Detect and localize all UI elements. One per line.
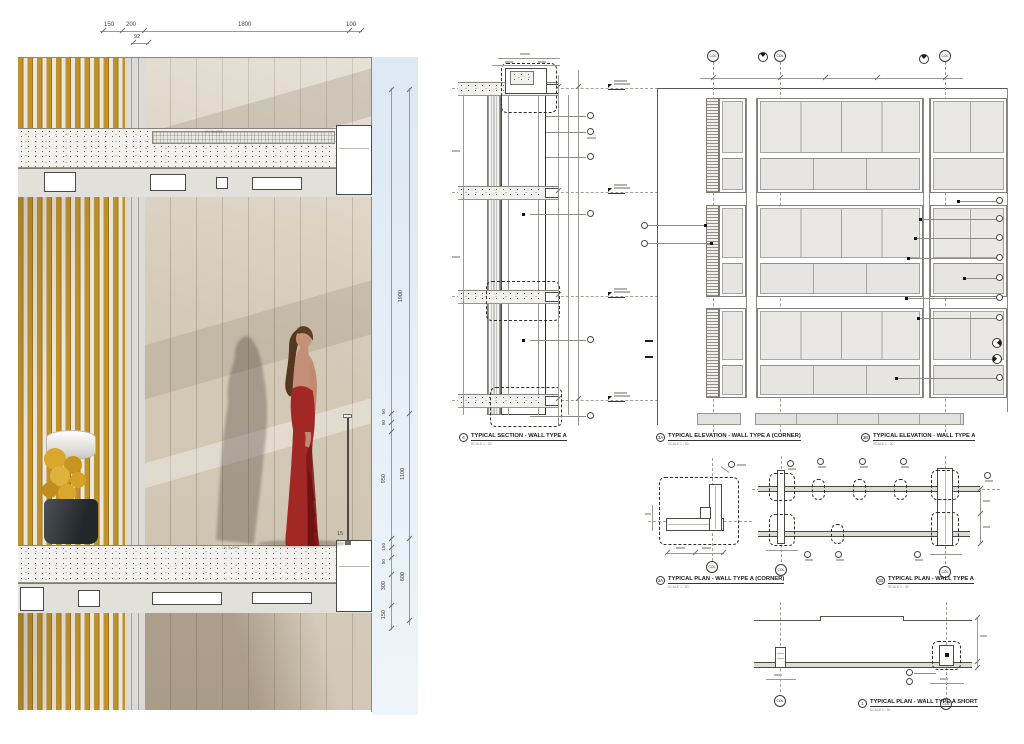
dim-right-1900: 1900 xyxy=(398,290,404,302)
callout-circle xyxy=(587,112,594,119)
lamp-base xyxy=(44,499,98,544)
callout-circle xyxy=(914,551,921,558)
tick xyxy=(823,75,829,81)
dot xyxy=(957,200,960,203)
corner-bracket-upper xyxy=(336,125,372,195)
tick xyxy=(146,40,152,46)
section-dim-v1 xyxy=(558,75,559,425)
dim-right-1100: 1100 xyxy=(400,468,406,480)
dot xyxy=(919,218,922,221)
callout-circle xyxy=(728,461,735,468)
elev-louver-strip-b1 xyxy=(706,98,719,193)
leader xyxy=(960,201,996,202)
callout-subtext xyxy=(901,466,909,468)
plan1-step-line-b xyxy=(820,616,903,617)
section-dim-v2 xyxy=(568,95,569,415)
elev-bottom-strip-2 xyxy=(755,413,964,425)
elev-right-boundary xyxy=(1007,88,1008,412)
drawing-title-plan2b: 2B TYPICAL PLAN - WALL TYPE ASCALE 1 : 3… xyxy=(876,576,974,589)
corner-bracket-lower xyxy=(336,540,372,612)
micro-dim-text xyxy=(505,61,513,63)
level-marker xyxy=(608,188,630,196)
drawing-title-plan1: 1 TYPICAL PLAN - WALL TYPE A SHORTSCALE … xyxy=(858,699,978,712)
title-bubble-2a: 2A xyxy=(656,576,665,585)
gridline-2 xyxy=(780,62,781,432)
plan2a-dim-left xyxy=(652,505,653,531)
plan2a-corner-fitting xyxy=(700,507,711,519)
tick xyxy=(721,550,727,556)
plan2b-dim-leftmullion xyxy=(766,550,798,551)
soffit-lower-box-4 xyxy=(252,592,312,604)
callout-circle xyxy=(996,274,1003,281)
micro-dim-text xyxy=(452,256,460,258)
callout-circle xyxy=(996,254,1003,261)
gridline-1 xyxy=(713,62,714,432)
plan1-left-mullion-line2 xyxy=(777,658,784,659)
callout-circle xyxy=(996,234,1003,241)
grid-bubble-plan1-left: COL xyxy=(774,695,786,707)
render-section: 1% SLOPE 1% SLOPE xyxy=(0,0,455,744)
dim-right-950: 950 xyxy=(381,474,387,483)
title-bubble-2b: 2B xyxy=(876,576,885,585)
micro-dim-text xyxy=(452,150,460,152)
elev-left-boundary xyxy=(657,88,658,425)
soffit-upper-box-4 xyxy=(252,177,302,190)
section6-drawing xyxy=(450,40,650,460)
micro-dim-text xyxy=(983,500,990,502)
level-marker xyxy=(608,84,630,92)
plan2b-left-detail-top xyxy=(769,473,795,501)
soffit-upper-box-2 xyxy=(150,174,186,191)
leader xyxy=(914,673,936,674)
plan1-step-line-a xyxy=(754,620,820,621)
callout-circle xyxy=(906,678,913,685)
callout-subtext xyxy=(805,559,813,561)
dim-right-50a: 50 xyxy=(381,409,386,414)
plan1-left-mullion-line xyxy=(777,653,784,654)
tick xyxy=(359,28,365,34)
elev-bayA-b1 xyxy=(719,98,746,193)
leader xyxy=(908,298,996,299)
bay-gap-line-4 xyxy=(929,98,930,398)
callout-circle xyxy=(787,460,794,467)
dim-right-50c: 50 xyxy=(381,559,386,564)
grid-bubble-2: COL xyxy=(774,50,786,62)
plan2b-joint-lower xyxy=(831,524,844,544)
plan2b-joint-2 xyxy=(853,479,866,500)
title-bubble-6: 6 xyxy=(459,433,468,442)
grid-bubble-3: COL xyxy=(939,50,951,62)
lamp-ball-5 xyxy=(42,482,58,498)
dim-rail-15: 15 xyxy=(337,531,343,537)
plan1-step-line-c xyxy=(903,620,972,621)
plan2b-joint-1 xyxy=(812,479,825,500)
leader xyxy=(920,318,996,319)
callout-circle xyxy=(587,128,594,135)
dim-right-50b: 50 xyxy=(381,420,386,425)
plan1-dim-right xyxy=(930,683,964,684)
callout-subtext xyxy=(985,480,993,482)
dot xyxy=(963,277,966,280)
drawing-title-section6: 6 TYPICAL SECTION - WALL TYPE ASCALE 1 :… xyxy=(459,433,567,446)
elev-bayMain-b2 xyxy=(757,205,923,297)
dot xyxy=(917,317,920,320)
elev-bayRight-b1 xyxy=(930,98,1007,193)
tick xyxy=(943,75,949,81)
callout-subtext xyxy=(737,464,746,466)
callout-subtext xyxy=(587,137,596,139)
leader xyxy=(648,225,704,226)
slab-lower-concrete xyxy=(18,545,372,583)
soffit-lower-box-3 xyxy=(152,592,222,605)
tick xyxy=(711,75,717,81)
dim-line-right-inner xyxy=(391,88,392,630)
callout-subtext xyxy=(915,559,923,561)
dot xyxy=(907,257,910,260)
dot xyxy=(914,237,917,240)
compass-marker-up xyxy=(992,338,1002,348)
leader xyxy=(922,219,996,220)
plan2b-left-detail-bottom xyxy=(769,514,795,546)
callout-circle xyxy=(587,412,594,419)
callout-circle xyxy=(817,458,824,465)
plan2b-dim-right xyxy=(980,489,981,544)
micro-dim-text xyxy=(774,674,782,676)
callout-circle xyxy=(587,153,594,160)
section-dim-left xyxy=(463,95,464,415)
section-detail-box-top xyxy=(501,63,557,113)
grid-bubble-2b-left: COL xyxy=(775,564,787,576)
section-dim-top-2 xyxy=(492,65,560,66)
section-wall-line-a xyxy=(508,95,509,415)
plan2b-drawing: COL COL xyxy=(750,452,1010,577)
drawing-title-elev3a: 3A TYPICAL ELEVATION - WALL TYPE A (CORN… xyxy=(656,433,801,446)
dot xyxy=(522,339,525,342)
drawing-title-plan2a: 2A TYPICAL PLAN - WALL TYPE A (CORNER)SC… xyxy=(656,576,784,589)
bay-gap-line-1 xyxy=(746,98,747,398)
callout-circle xyxy=(996,215,1003,222)
callout-circle xyxy=(835,551,842,558)
title-bubble-3a: 3A xyxy=(656,433,665,442)
plan2b-right-detail-top xyxy=(931,470,959,500)
callout-circle xyxy=(996,294,1003,301)
soffit-lower-box-2 xyxy=(78,590,100,607)
section-slab-2 xyxy=(458,186,558,200)
level-marker xyxy=(608,396,630,404)
elev-bayA-b2 xyxy=(719,205,746,297)
slab-upper-screed-mesh xyxy=(152,131,335,144)
leader xyxy=(721,466,730,472)
tick xyxy=(875,75,881,81)
architectural-sheet: 1% SLOPE 1% SLOPE xyxy=(0,0,1024,744)
micro-dim-text xyxy=(980,635,987,637)
dot xyxy=(522,213,525,216)
leader xyxy=(966,278,996,279)
tick xyxy=(978,541,984,547)
elev-bayRight-b3 xyxy=(930,308,1007,398)
tick xyxy=(778,75,784,81)
title-bubble-1: 1 xyxy=(858,699,867,708)
leader xyxy=(546,132,586,133)
plan2b-joint-3 xyxy=(894,479,907,500)
slope-label-top: 1% SLOPE xyxy=(205,120,223,138)
callout-subtext xyxy=(836,559,844,561)
railing-glass-edge xyxy=(347,418,349,545)
elev-top-boundary xyxy=(657,88,1008,89)
bracket-upper-line xyxy=(339,148,369,149)
micro-dim-text xyxy=(645,513,651,515)
micro-dim-text xyxy=(983,526,990,528)
woman-figure xyxy=(256,322,336,548)
dim-top-92: 92 xyxy=(134,34,140,40)
dim-right-150a: 150 xyxy=(381,543,386,551)
plan2b-right-detail-bottom xyxy=(931,512,959,546)
section-detail-box-bottom xyxy=(490,387,562,427)
micro-dim-text xyxy=(538,61,546,63)
dot xyxy=(704,224,707,227)
leader xyxy=(530,214,586,215)
leader xyxy=(546,116,586,117)
callout-circle xyxy=(900,458,907,465)
elev-bayRight-b2 xyxy=(930,205,1007,297)
level-marker xyxy=(608,292,630,300)
dim-top-150: 150 xyxy=(104,22,114,28)
elev-bottom-strip-1 xyxy=(697,413,741,425)
plan2a-drawing: COL xyxy=(640,455,760,575)
callout-subtext xyxy=(788,468,796,470)
leader xyxy=(648,243,711,244)
dim-right-300: 300 xyxy=(381,581,387,590)
callout-circle xyxy=(906,669,913,676)
drawing-title-elev3b: 3B TYPICAL ELEVATION - WALL TYPE ASCALE … xyxy=(861,433,975,446)
plan1-step-conn-1 xyxy=(820,616,821,621)
bay-gap-line-2 xyxy=(756,98,757,398)
plan2b-dim-rightmullion xyxy=(930,554,962,555)
dim-right-150b: 150 xyxy=(381,610,387,619)
plan1-drawing: COL COL xyxy=(740,595,1020,710)
elev-bayA-b3 xyxy=(719,308,746,398)
plan1-dim-left xyxy=(766,679,796,680)
elev-bayMain-b1 xyxy=(757,98,923,193)
callout-circle xyxy=(996,314,1003,321)
gridline-3 xyxy=(945,62,946,432)
dot xyxy=(895,377,898,380)
section-dim-top-1 xyxy=(498,58,560,59)
soffit-lower-box-1 xyxy=(20,587,44,611)
section-dim-v3 xyxy=(578,70,579,425)
compass-marker-down xyxy=(992,354,1002,364)
callout-circle xyxy=(587,336,594,343)
leader xyxy=(530,416,586,417)
louver-screen-top xyxy=(18,57,125,128)
leader xyxy=(898,378,996,379)
callout-circle xyxy=(587,210,594,217)
dim-right-600: 600 xyxy=(400,572,406,581)
plan2a-detail-box xyxy=(659,477,739,545)
callout-circle xyxy=(804,551,811,558)
dim-top-1800: 1800 xyxy=(238,22,251,28)
callout-subtext xyxy=(860,466,868,468)
callout-circle xyxy=(984,472,991,479)
plan1-right-mullion-core xyxy=(945,653,949,657)
grid-bubble-2a: COL xyxy=(706,561,718,573)
leader xyxy=(917,238,996,239)
dot xyxy=(710,242,713,245)
plan2a-wall-v-line xyxy=(715,486,716,529)
micro-dim-text xyxy=(702,547,711,549)
soffit-upper-box-3 xyxy=(216,177,228,189)
micro-dim-text xyxy=(940,678,948,680)
callout-circle xyxy=(996,197,1003,204)
dim-line-right-outer xyxy=(409,88,410,625)
soffit-upper-box-1 xyxy=(44,172,76,192)
micro-dim-text xyxy=(676,547,685,549)
dot xyxy=(905,297,908,300)
plan1-step-conn-2 xyxy=(903,616,904,621)
grid-bubble-1: COL xyxy=(707,50,719,62)
callout-circle xyxy=(996,374,1003,381)
dim-top-200: 200 xyxy=(126,22,136,28)
section-cut-marker-2 xyxy=(919,54,929,64)
wall-shadow-lower xyxy=(145,613,371,710)
elev-louver-strip-b2 xyxy=(706,205,719,297)
elev-dim-top xyxy=(700,78,963,79)
elev-louver-strip-b3 xyxy=(706,308,719,398)
section-louver-hatch xyxy=(487,95,501,415)
louver-bottom-shading xyxy=(18,613,125,710)
section-detail-box-mid xyxy=(486,281,560,321)
leader xyxy=(530,340,586,341)
leader xyxy=(546,157,586,158)
dim-top-100: 100 xyxy=(346,22,356,28)
micro-dim-text xyxy=(520,53,530,55)
roof-edge-line xyxy=(18,57,372,58)
section-cut-marker-1 xyxy=(758,52,768,62)
leader xyxy=(910,258,996,259)
bay-gap-line-3 xyxy=(923,98,924,398)
dim-line-top xyxy=(100,31,362,32)
section-wall-line-b xyxy=(538,95,539,415)
callout-circle xyxy=(859,458,866,465)
callout-subtext xyxy=(818,466,826,468)
elev-bayMain-b3 xyxy=(757,308,923,398)
tick xyxy=(975,665,981,671)
title-bubble-3b: 3B xyxy=(861,433,870,442)
bracket-lower-line xyxy=(339,566,369,567)
